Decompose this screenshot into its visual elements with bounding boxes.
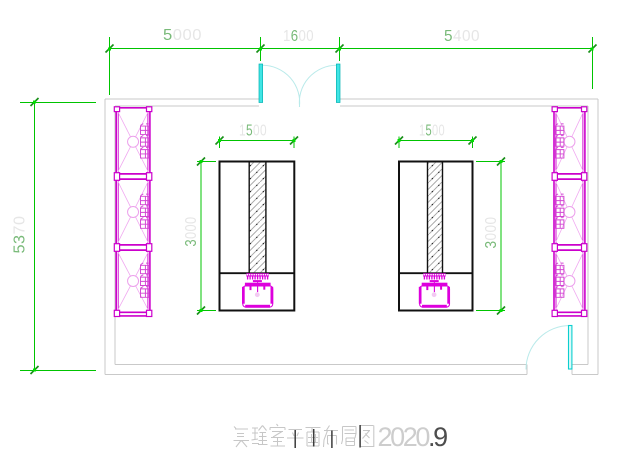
svg-text:3000: 3000 [483,217,500,249]
svg-text:1500: 1500 [419,123,445,140]
svg-text:3000: 3000 [183,217,200,247]
svg-text:5370: 5370 [12,216,29,254]
svg-text:1600: 1600 [283,28,314,45]
svg-text:2020.9: 2020.9 [378,422,448,452]
svg-text:5000: 5000 [163,27,202,44]
svg-text:1500: 1500 [239,123,267,140]
svg-text:5400: 5400 [444,28,480,45]
